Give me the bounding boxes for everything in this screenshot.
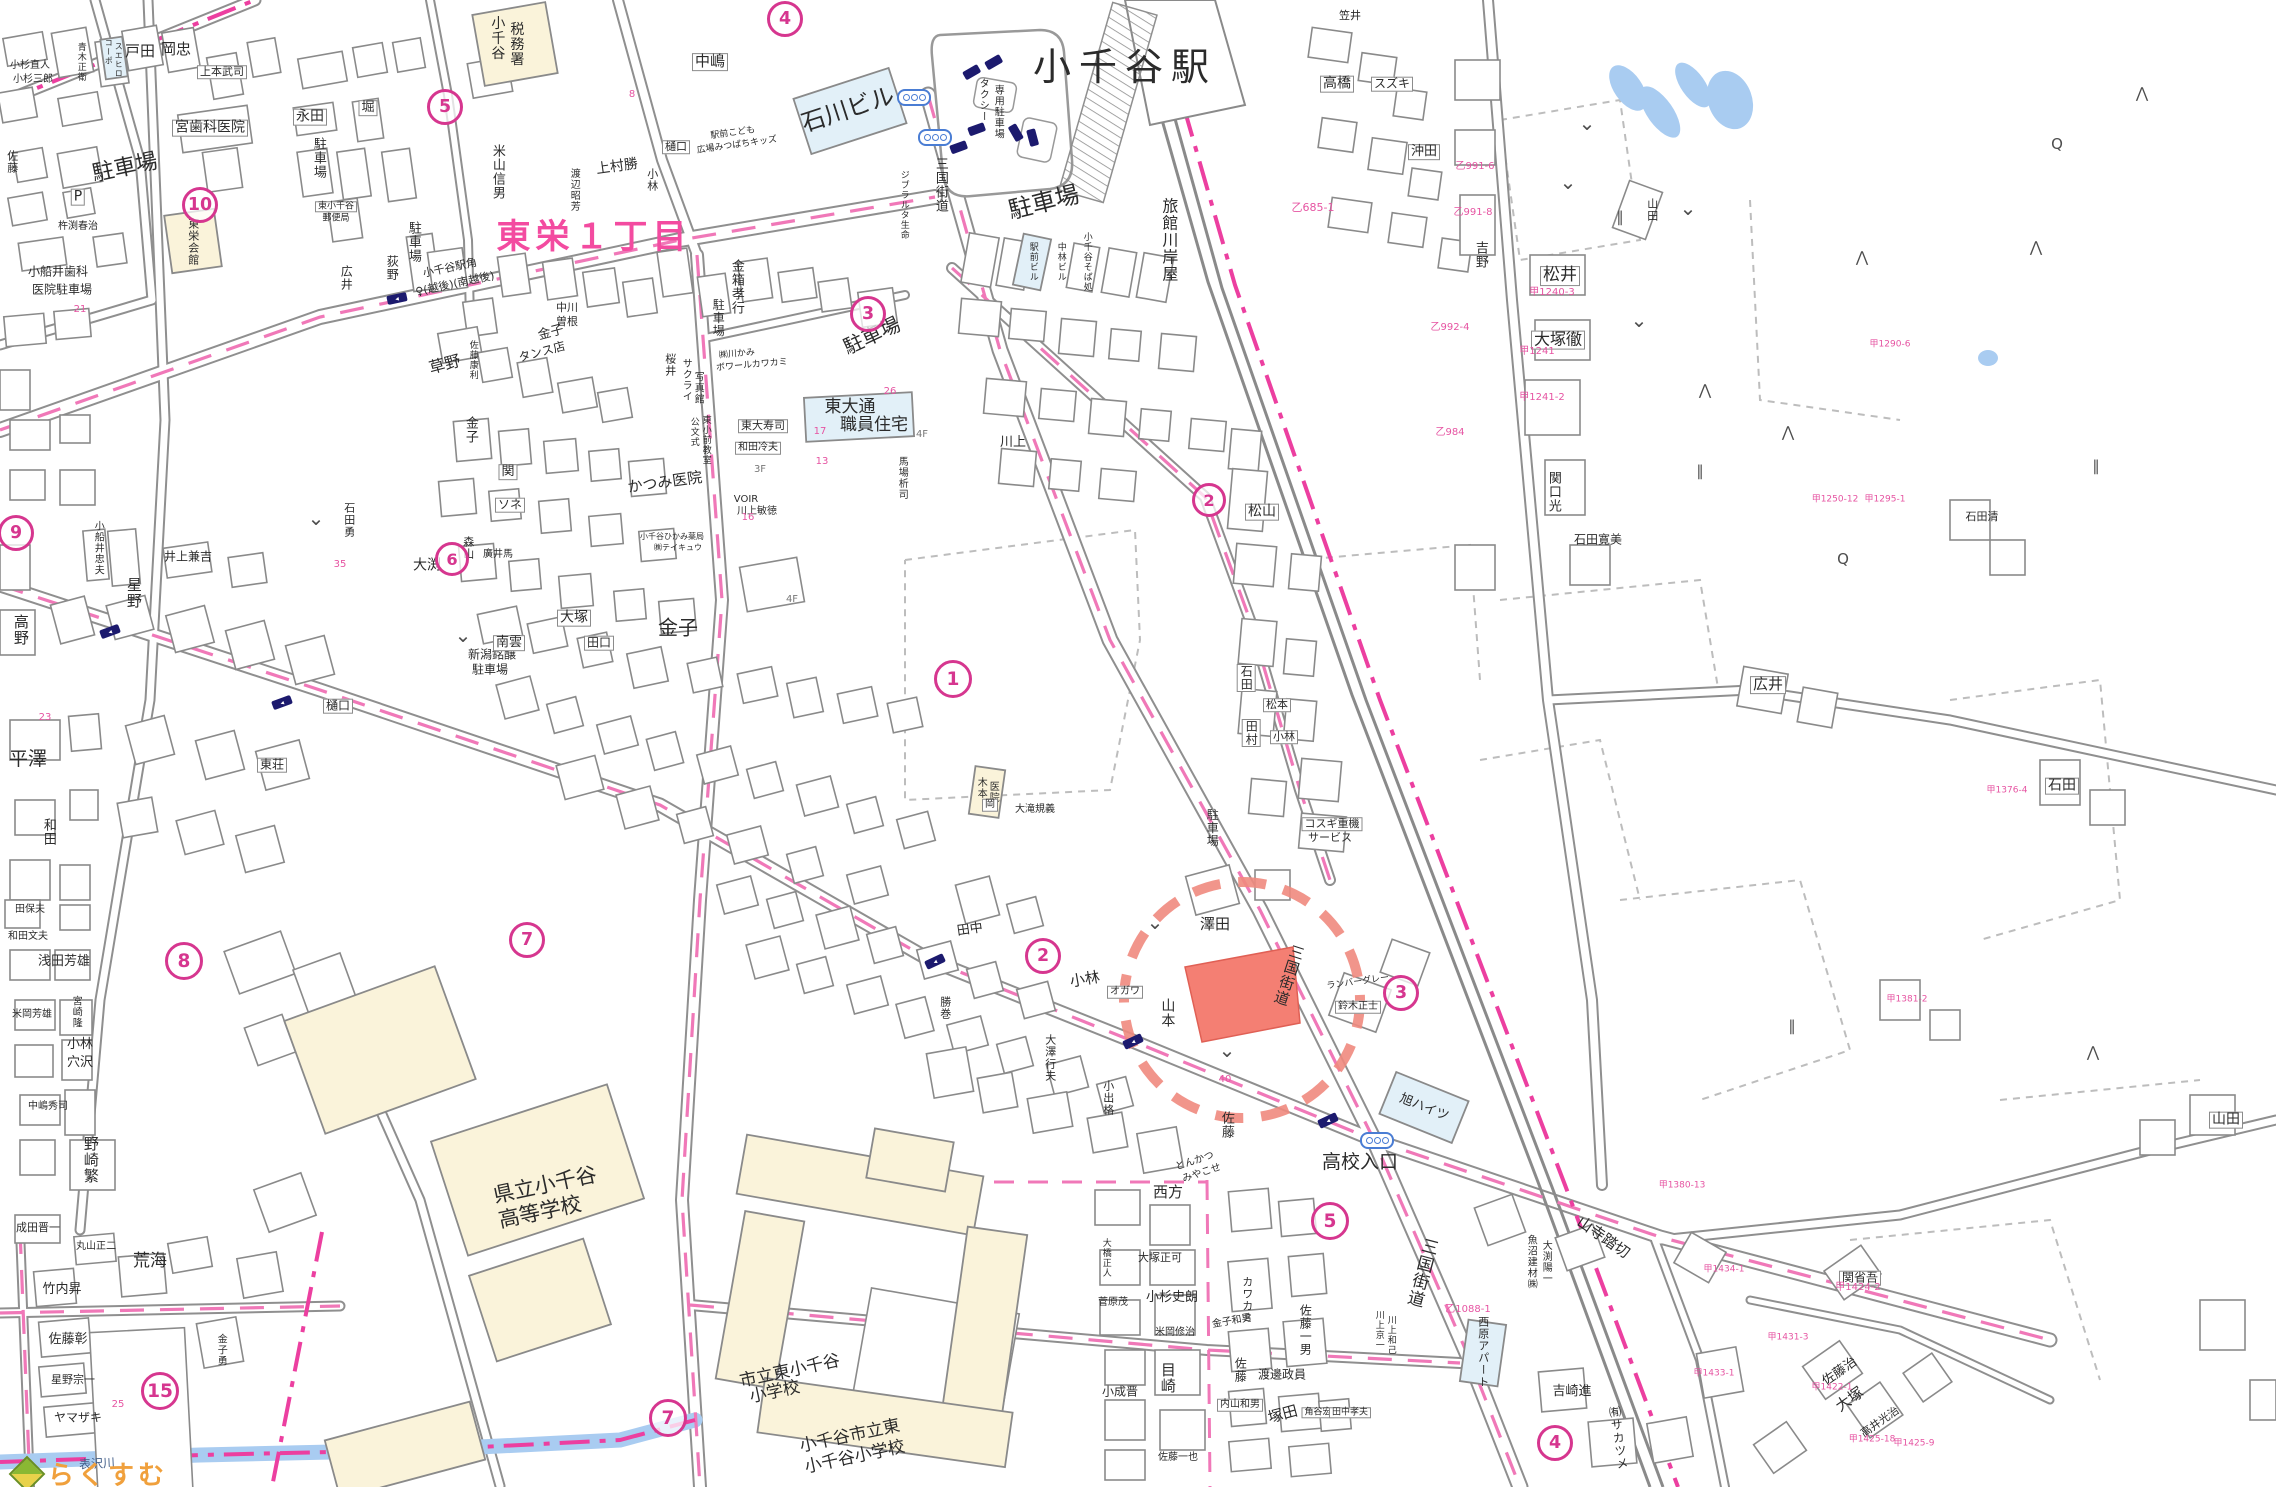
map-label: 甲1433-1: [1694, 1369, 1735, 1378]
map-label: 駐車場: [406, 221, 420, 263]
map-label: スエヒロ: [114, 42, 122, 78]
map-label: 穴沢: [67, 1056, 93, 1070]
map-label: 関: [498, 464, 517, 480]
map-label: 石田: [1237, 664, 1256, 692]
map-label: 青木正衛: [75, 42, 84, 82]
traffic-signal-icon: [1360, 1132, 1394, 1149]
map-label: 東栄会館: [187, 218, 199, 266]
map-label: 松山: [1245, 504, 1279, 521]
map-label: 東大寿司: [738, 419, 788, 433]
map-label: 乙984: [1435, 428, 1464, 439]
map-label: 米山信男: [490, 144, 504, 200]
map-label: ヤマザキ: [54, 1412, 102, 1425]
map-label: 23: [39, 713, 52, 724]
map-label: 南雲: [493, 635, 525, 651]
map-label: 竹内昇: [42, 1283, 81, 1297]
map-label: 甲1425-18: [1849, 1435, 1896, 1444]
map-label: 4F: [786, 595, 798, 606]
map-label: 高校入口: [1322, 1153, 1398, 1173]
map-label: 甲1425-9: [1894, 1439, 1935, 1448]
map-label: 目崎: [1159, 1362, 1175, 1394]
road-arrow-icon: ◂: [386, 292, 407, 305]
map-label: 田口: [584, 636, 614, 651]
vegetation-symbol: Q: [1837, 550, 1849, 568]
map-label: 吉野: [1473, 241, 1487, 269]
map-label: 35: [334, 560, 347, 571]
map-label: 小千谷駅: [1033, 48, 1217, 88]
block-number-badge: 10: [182, 187, 218, 223]
block-number-badge: 5: [427, 89, 463, 125]
vegetation-symbol: ⌄: [1680, 196, 1697, 220]
logo-diamond-icon: [9, 1455, 46, 1487]
map-label: 馬場析司: [896, 456, 907, 500]
map-label: 佐藤一也: [1158, 1453, 1198, 1464]
map-label: サクライ: [680, 358, 691, 402]
map-label: 公文式: [688, 417, 697, 447]
road-arrow-icon: ◂: [99, 624, 121, 639]
map-label: 山本: [1160, 998, 1175, 1028]
map-label: 関口光: [1546, 471, 1560, 513]
vegetation-symbol: ⌄: [1631, 308, 1648, 332]
map-label: 西原アパート: [1477, 1316, 1489, 1388]
map-label: 小林: [67, 1038, 93, 1052]
map-label: 医院駐車場: [32, 284, 92, 297]
map-label: 石田清: [1966, 511, 1999, 523]
map-label: 小林: [646, 168, 658, 192]
map-label: 石川ビル: [798, 83, 897, 137]
map-label: 永田: [293, 109, 327, 126]
map-label: 戸田: [125, 44, 155, 60]
map-label: 乙685-1: [1292, 202, 1335, 214]
map-label: 東小前教室: [700, 415, 709, 465]
map-label: 桜井: [664, 353, 676, 377]
map-provider-logo: らくすむ: [14, 1455, 168, 1487]
map-label: 東小千谷: [315, 201, 357, 212]
map-label: 木本: [975, 777, 986, 799]
vegetation-symbol: ⋀: [1782, 423, 1794, 441]
map-label: 三国街道: [1271, 942, 1306, 1008]
map-label: 石田: [2045, 778, 2079, 795]
map-label: 宮崎隆: [70, 996, 81, 1029]
vegetation-symbol: ⌄: [455, 623, 472, 647]
map-label: 菅原茂: [1098, 1298, 1128, 1309]
map-label: 乙992-4: [1430, 323, 1469, 334]
map-label: 大渕陽一: [1540, 1240, 1551, 1284]
map-label: 塚田: [1266, 1404, 1299, 1427]
map-label: 13: [816, 457, 829, 468]
map-label: 広井: [1750, 676, 1786, 694]
map-label: 佐藤: [6, 150, 18, 174]
map-label: 樋口: [662, 140, 690, 154]
map-label: 金子: [463, 416, 477, 444]
map-label: 中嶋秀司: [28, 1102, 68, 1113]
map-label: 小林: [1069, 970, 1101, 991]
map-label: 26: [884, 387, 897, 398]
map-label: 乙991-6: [1455, 162, 1494, 173]
map-label: サービス: [1308, 832, 1352, 844]
map-label: 駐車場: [90, 150, 159, 186]
map-label: スズキ: [1371, 77, 1413, 92]
map-label: 魚沼建材㈱: [1525, 1235, 1536, 1290]
road-arrow-icon: ◂: [1122, 1033, 1144, 1050]
block-number-badge: 4: [1537, 1425, 1573, 1461]
road-arrow-icon: ◂: [1317, 1112, 1339, 1129]
map-label: 大橋正人: [1100, 1238, 1109, 1278]
map-label: コーポ: [104, 39, 112, 66]
map-label: 金箱孝行: [729, 259, 743, 315]
map-label: 佐藤彰: [48, 1333, 87, 1347]
map-label: 甲1376-4: [1987, 786, 2028, 795]
map-label: 田村: [1242, 719, 1261, 747]
map-label: 川上: [1000, 436, 1026, 450]
vegetation-symbol: Q: [2051, 135, 2063, 153]
map-label: 米岡修治: [1155, 1328, 1195, 1339]
vegetation-symbol: ∥: [2092, 457, 2100, 475]
map-label: 高橋: [1320, 76, 1354, 93]
map-label: 山寺踏切: [1574, 1214, 1632, 1261]
map-label: 駅前ビル: [1027, 242, 1036, 282]
map-label: 17: [814, 427, 827, 438]
map-label: ジブラルタ生命: [898, 170, 907, 240]
map-label: 佐藤: [1219, 1111, 1233, 1139]
map-label: 甲1290-6: [1870, 340, 1911, 349]
road-arrow-icon: ◂: [924, 953, 946, 970]
map-label: 平澤: [9, 750, 47, 770]
map-label: 駐車場: [472, 664, 508, 677]
map-label: ㈱テイキュウ: [654, 544, 702, 552]
map-label: 和田: [41, 818, 55, 846]
map-label: 専用駐車場: [992, 85, 1003, 140]
map-label: 金子: [658, 618, 698, 639]
block-number-badge: 4: [767, 1, 803, 37]
map-label: 杵渕春治: [58, 222, 98, 233]
map-label: 川上和己: [1385, 1315, 1394, 1355]
map-label: 甲1295-1: [1865, 495, 1906, 504]
map-label: 小杉史朗: [1146, 1291, 1198, 1305]
map-label: 山田: [2209, 1112, 2243, 1129]
map-label: 小出格: [1102, 1080, 1114, 1116]
vegetation-symbol: ⋀: [1856, 248, 1868, 266]
map-label: 山田: [1646, 198, 1658, 222]
map-canvas[interactable]: 小千谷駅東栄１丁目駐車場旅館川岸屋石川ビル中嶋タクシー専用駐車場三国街道駅前こど…: [0, 0, 2276, 1487]
map-label: 星野: [125, 577, 141, 609]
block-number-badge: 7: [509, 922, 545, 958]
map-label: 田中: [956, 921, 984, 938]
map-label: 4F: [916, 430, 928, 441]
map-overlay-layer: 小千谷駅東栄１丁目駐車場旅館川岸屋石川ビル中嶋タクシー専用駐車場三国街道駅前こど…: [0, 0, 2276, 1487]
map-label: 宮歯科医院: [172, 120, 248, 137]
map-label: 澤田: [1200, 917, 1230, 933]
map-label: 旭ハイツ: [1397, 1092, 1450, 1124]
map-label: 川上京一: [1373, 1310, 1382, 1350]
map-label: 和田冷夫: [735, 442, 781, 455]
map-label: P: [71, 189, 85, 206]
block-number-badge: 2: [1025, 938, 1061, 974]
map-label: 樋口: [323, 699, 353, 714]
map-label: 小船井忠夫: [92, 521, 103, 576]
vegetation-symbol: ∥: [1788, 1017, 1796, 1035]
block-number-badge: 3: [850, 296, 886, 332]
map-label: 和田文夫: [8, 932, 48, 943]
map-label: 田保夫: [15, 905, 45, 916]
block-number-badge: 3: [1383, 975, 1419, 1011]
map-label: 松井: [1540, 266, 1580, 286]
map-label: 25: [112, 1400, 125, 1411]
traffic-signal-icon: [897, 89, 931, 106]
traffic-signal-icon: [918, 129, 952, 146]
map-label: 金子和男: [1211, 1313, 1252, 1330]
vegetation-symbol: ∥: [1616, 208, 1624, 226]
map-label: 田中孝夫: [1329, 1407, 1371, 1418]
map-label: 石田勇: [343, 502, 355, 538]
map-label: タクシー: [977, 78, 988, 122]
map-label: 岡: [982, 799, 998, 812]
map-label: 甲1434-1: [1704, 1265, 1745, 1274]
map-label: 広井: [340, 265, 353, 291]
map-label: ㈲サカツメ: [1607, 1405, 1629, 1471]
map-label: 40: [1219, 1075, 1232, 1086]
map-label: 小成晋: [1102, 1386, 1138, 1399]
map-label: 甲1381-2: [1887, 995, 1928, 1004]
block-number-badge: 7: [649, 1399, 687, 1437]
map-label: 小杉直人: [10, 61, 50, 72]
map-label: 渡邊政員: [1258, 1369, 1306, 1382]
map-label: 松本: [1263, 698, 1291, 712]
map-label: 荻野: [386, 255, 399, 281]
map-label: 郵便局: [322, 214, 349, 223]
map-label: 笠井: [1339, 10, 1361, 22]
map-label: 乙1088-1: [1445, 1305, 1490, 1316]
map-label: 西方: [1153, 1185, 1183, 1201]
map-label: 小林: [1270, 730, 1298, 744]
map-label: 16: [742, 513, 755, 524]
block-number-badge: 1: [934, 660, 972, 698]
map-label: 乙991-8: [1453, 208, 1492, 219]
map-label: 小千谷ひかみ薬局: [640, 533, 704, 541]
map-label: 駐車場: [712, 299, 725, 338]
vegetation-symbol: ⌄: [1560, 170, 1577, 194]
map-label: 甲1241: [1519, 347, 1554, 358]
map-label: 佐藤康利: [467, 340, 476, 380]
map-label: 中川: [556, 302, 578, 314]
map-label: 8: [629, 90, 635, 101]
vegetation-symbol: ⌄: [1579, 111, 1596, 135]
vegetation-symbol: ⌄: [308, 506, 325, 530]
map-label: 荒海: [133, 1253, 167, 1271]
map-label: 石田寛美: [1574, 534, 1622, 547]
map-label: 旅館川岸屋: [1160, 198, 1177, 283]
map-label: 堀: [358, 100, 377, 116]
map-label: 大滝規義: [1015, 805, 1055, 816]
map-label: 甲1422-1: [1812, 1383, 1853, 1392]
block-number-badge: 8: [165, 942, 203, 980]
map-label: 小千谷: [490, 16, 505, 61]
map-label: 岡忠: [161, 42, 191, 58]
map-label: 吉崎進: [1552, 1385, 1591, 1399]
map-label: タンス店: [517, 340, 566, 365]
block-number-badge: 5: [1311, 1202, 1349, 1240]
block-number-badge: 9: [0, 515, 34, 551]
map-label: 21: [74, 305, 87, 316]
map-label: 廣井馬: [483, 550, 513, 561]
vegetation-symbol: ⋀: [1699, 381, 1711, 399]
map-label: 小船井歯科: [28, 266, 88, 279]
map-label: 税務署: [509, 22, 524, 67]
map-label: 上村勝: [595, 157, 639, 177]
map-label: 米岡芳雄: [12, 1010, 52, 1021]
map-label: 3F: [754, 465, 766, 476]
map-label: ランバーグレー: [1326, 974, 1390, 992]
map-label: 甲1431-3: [1768, 1333, 1809, 1342]
map-label: 広場みつばちキッズ: [696, 136, 778, 157]
map-label: 勝巻: [939, 996, 951, 1020]
map-label: 高野: [12, 614, 28, 646]
map-label: 駐車場: [1006, 182, 1082, 224]
map-label: 佐藤一男: [1299, 1304, 1312, 1356]
map-label: 丸山正二: [76, 1242, 116, 1253]
map-label: 甲1380-13: [1659, 1181, 1706, 1190]
map-label: 内山和男: [1217, 1399, 1263, 1412]
logo-text: らくすむ: [48, 1455, 168, 1487]
map-label: 駐車場: [1206, 809, 1219, 848]
map-label: 大澤行夫: [1044, 1034, 1056, 1082]
map-label: 浅田芳雄: [38, 955, 90, 969]
map-label: 甲1240-3: [1529, 288, 1574, 299]
map-label: 甲1424-2: [1835, 1283, 1880, 1294]
map-label: 駐車場: [311, 137, 325, 179]
map-label: 渡辺昭芳: [568, 168, 579, 212]
map-label: 井上兼吉: [164, 551, 212, 564]
block-number-badge: 6: [435, 542, 469, 576]
road-arrow-icon: ◂: [271, 695, 293, 710]
map-label: 職員住宅: [840, 417, 908, 435]
map-label: VOIR: [734, 495, 758, 506]
map-label: 成田晋一: [16, 1222, 60, 1234]
map-label: 三国街道: [933, 157, 947, 213]
map-label: 東荘: [257, 758, 287, 773]
vegetation-symbol: ⋀: [2136, 84, 2148, 102]
map-label: 沖田: [1408, 144, 1440, 160]
map-label: 三国街道: [1402, 1235, 1438, 1309]
block-number-badge: 2: [1192, 483, 1226, 517]
map-label: 中林ビル: [1055, 242, 1064, 282]
map-label: かつみ医院: [627, 470, 703, 496]
map-label: 写真館: [692, 372, 703, 405]
vegetation-symbol: ⌄: [1219, 1038, 1236, 1062]
map-label: 東栄１丁目: [497, 220, 692, 256]
vegetation-symbol: ⌄: [1147, 910, 1164, 934]
map-label: 星野宗一: [51, 1374, 95, 1386]
map-label: 甲1241-2: [1519, 393, 1564, 404]
map-label: ソネ: [495, 498, 525, 513]
map-label: 鈴木正士: [1335, 1001, 1381, 1014]
map-label: 小千谷そば処: [1081, 232, 1090, 292]
map-label: 中嶋: [692, 53, 728, 71]
map-label: オガワ: [1107, 986, 1143, 999]
map-label: 金子勇: [215, 1334, 226, 1367]
map-label: 野崎繁: [82, 1136, 98, 1184]
map-label: 小杉三郎: [13, 75, 53, 86]
map-label: 大塚: [557, 610, 591, 627]
vegetation-symbol: ⋀: [2030, 238, 2042, 256]
block-number-badge: 15: [141, 1372, 179, 1410]
map-label: 草野: [427, 353, 462, 378]
map-label: 佐藤: [1234, 1357, 1247, 1383]
map-label: 大塚正可: [1138, 1252, 1182, 1264]
vegetation-symbol: ∥: [1696, 462, 1704, 480]
map-label: コスギ重機: [1302, 817, 1363, 831]
vegetation-symbol: ⋀: [2087, 1043, 2099, 1061]
map-label: 上本武司: [197, 65, 247, 79]
map-label: 甲1250-12: [1812, 495, 1859, 504]
